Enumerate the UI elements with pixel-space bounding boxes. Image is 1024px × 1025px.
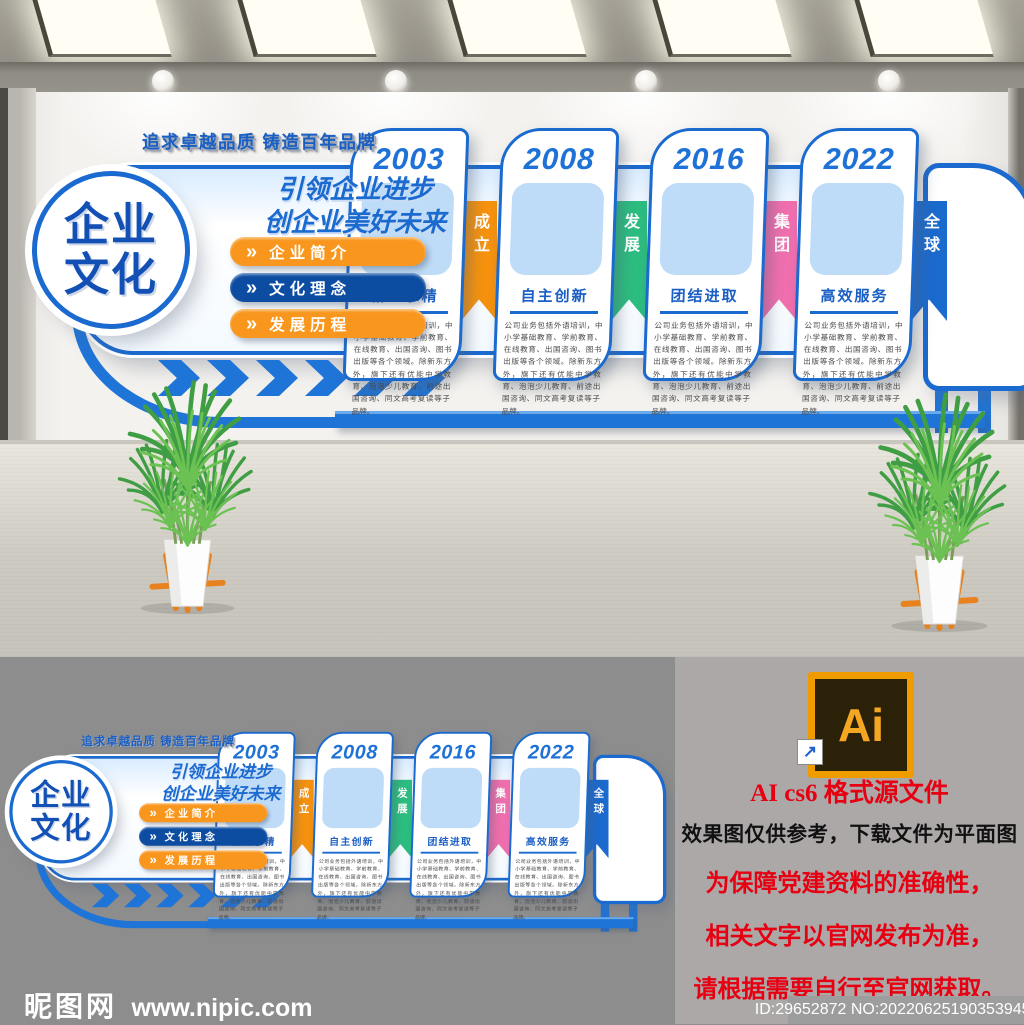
- timeline-panel-2016: 2016 团结进取 公司业务包括外语培训，中小学基础教育、学前教育、在线教育、出…: [643, 128, 770, 381]
- flat-design-preview: 追求卓越品质 铸造百年品牌 企业 文化 引领企业进步 创企业美好未来 » 企业简…: [8, 722, 656, 938]
- panel-photo-placeholder: [420, 768, 482, 828]
- timeline-panel-2022: 2022 高效服务 公司业务包括外语培训，中小学基础教育、学前教育、在线教育、出…: [793, 128, 920, 381]
- menu-pill-label: 企业简介: [165, 806, 219, 820]
- panel-body-text: 公司业务包括外语培训，中小学基础教育、学前教育、在线教育、出国咨询、图书出版等各…: [651, 320, 752, 418]
- ceiling-light-panel: [853, 0, 993, 57]
- brand-line-1: 企业: [30, 779, 92, 812]
- watermark: 昵图网 www.nipic.com: [24, 985, 313, 1025]
- notice-title: AI cs6 格式源文件: [675, 773, 1024, 809]
- panel-title: 高效服务: [798, 285, 911, 306]
- spotlight: [152, 70, 174, 92]
- timeline-panel-2016: 2016 团结进取 公司业务包括外语培训，中小学基础教育、学前教育、在线教育、出…: [409, 732, 492, 898]
- panel-body-text: 公司业务包括外语培训，中小学基础教育、学前教育、在线教育、出国咨询、图书出版等各…: [317, 857, 383, 921]
- spotlight: [385, 70, 407, 92]
- menu-pill-label: 发展历程: [165, 853, 219, 867]
- ai-icon-label: Ai: [838, 698, 884, 752]
- panel-year: 2022: [803, 143, 916, 177]
- menu-pill-culture-concept: » 文化理念: [230, 273, 426, 302]
- double-chevron-icon: »: [246, 242, 257, 262]
- ceiling: [0, 0, 1024, 62]
- showroom-scene: 追求卓越品质 铸造百年品牌 企业 文化 引领企业进步 创企业美好未来 » 企业简…: [0, 0, 1024, 657]
- double-chevron-icon: »: [149, 853, 156, 866]
- notice-red-line-1: 为保障党建资料的准确性，: [675, 863, 1024, 898]
- slogan-line-1: 引领企业进步: [222, 173, 488, 206]
- slogan-line-2: 创企业美好未来: [134, 783, 308, 804]
- ceiling-soffit: [0, 62, 1024, 92]
- double-chevron-icon: »: [149, 830, 156, 843]
- panel-divider: [322, 852, 380, 854]
- potted-plant: [854, 376, 1024, 636]
- double-chevron-icon: »: [149, 806, 156, 819]
- panel-photo-placeholder: [509, 183, 604, 275]
- asset-id-badge: ID:29652872 NO:20220625190353945123: [788, 996, 1024, 1024]
- panel-photo-placeholder: [809, 183, 904, 275]
- timeline-panel-2022: 2022 高效服务 公司业务包括外语培训，中小学基础教育、学前教育、在线教育、出…: [507, 732, 590, 898]
- menu-pill-company-profile: » 企业简介: [230, 237, 426, 266]
- spotlight: [635, 70, 657, 92]
- culture-wall: 追求卓越品质 铸造百年品牌 企业 文化 引领企业进步 创企业美好未来 » 企业简…: [8, 722, 656, 938]
- panel-title: 高效服务: [511, 835, 585, 849]
- panel-body-text: 公司业务包括外语培训，中小学基础教育、学前教育、在线教育、出国咨询、图书出版等各…: [415, 857, 481, 921]
- menu-pill-label: 发展历程: [269, 313, 351, 335]
- timeline-panel-2008: 2008 自主创新 公司业务包括外语培训，中小学基础教育、学前教育、在线教育、出…: [493, 128, 620, 381]
- menu-pill-development-history: » 发展历程: [139, 850, 267, 869]
- ceiling-light-panel: [31, 0, 171, 57]
- info-strip: 追求卓越品质 铸造百年品牌 企业 文化 引领企业进步 创企业美好未来 » 企业简…: [0, 657, 1024, 1024]
- menu-pill-label: 文化理念: [165, 829, 219, 843]
- panel-photo-placeholder: [518, 768, 580, 828]
- menu-pill-label: 文化理念: [269, 277, 351, 299]
- brand-line-1: 企业: [64, 200, 158, 250]
- panel-title: 自主创新: [498, 285, 611, 306]
- menu-pill-culture-concept: » 文化理念: [139, 827, 267, 846]
- menu-pill-development-history: » 发展历程: [230, 309, 426, 338]
- watermark-site-url: www.nipic.com: [131, 994, 312, 1022]
- slogan: 引领企业进步 创企业美好未来: [134, 761, 308, 804]
- panel-body-text: 公司业务包括外语培训，中小学基础教育、学前教育、在线教育、出国咨询、图书出版等各…: [501, 320, 602, 418]
- ceiling-light-panel: [446, 0, 586, 57]
- brand-line-2: 文化: [30, 812, 92, 845]
- notice-disclaimer: 效果图仅供参考，下载文件为平面图: [663, 817, 1024, 847]
- double-chevron-icon: »: [246, 278, 257, 298]
- panel-title: 团结进取: [648, 285, 761, 306]
- panel-divider: [510, 311, 598, 314]
- double-chevron-icon: »: [246, 314, 257, 334]
- flat-preview-area: 追求卓越品质 铸造百年品牌 企业 文化 引领企业进步 创企业美好未来 » 企业简…: [0, 657, 675, 1024]
- brand-circle: 企业 文化: [9, 760, 112, 863]
- top-tagline: 追求卓越品质 铸造百年品牌: [142, 129, 742, 154]
- adobe-illustrator-icon: Ai: [808, 672, 914, 778]
- brand-line-2: 文化: [64, 250, 158, 300]
- ceiling-light-panel: [236, 0, 376, 57]
- download-notes-area: Ai ↗ AI cs6 格式源文件 效果图仅供参考，下载文件为平面图 为保障党建…: [675, 657, 1024, 1024]
- panel-body-text: 公司业务包括外语培训，中小学基础教育、学前教育、在线教育、出国咨询、图书出版等各…: [513, 857, 579, 921]
- slogan-line-2: 创企业美好未来: [222, 206, 488, 239]
- panel-photo-placeholder: [659, 183, 754, 275]
- panel-divider: [660, 311, 748, 314]
- top-tagline: 追求卓越品质 铸造百年品牌: [81, 732, 474, 748]
- slogan-line-1: 引领企业进步: [134, 761, 308, 782]
- panel-divider: [810, 311, 898, 314]
- potted-plant: [104, 364, 272, 618]
- panel-photo-placeholder: [322, 768, 384, 828]
- panel-divider: [421, 852, 479, 854]
- shortcut-arrow-glyph: ↗: [803, 742, 817, 762]
- brand-circle: 企业 文化: [32, 171, 190, 329]
- timeline-panel-2008: 2008 自主创新 公司业务包括外语培训，中小学基础教育、学前教育、在线教育、出…: [311, 732, 394, 898]
- panel-divider: [519, 852, 577, 854]
- watermark-site-name: 昵图网: [24, 991, 117, 1022]
- menu-pill-label: 企业简介: [269, 241, 351, 263]
- ceiling-light-panel: [651, 0, 791, 57]
- notice-red-line-2: 相关文字以官网发布为准，: [675, 916, 1024, 951]
- panel-title: 自主创新: [315, 835, 389, 849]
- slogan: 引领企业进步 创企业美好未来: [222, 173, 488, 238]
- panel-title: 团结进取: [413, 835, 487, 849]
- menu-pill-company-profile: » 企业简介: [139, 803, 267, 822]
- panel-year: 2022: [514, 742, 588, 764]
- spotlight: [878, 70, 900, 92]
- shortcut-arrow-icon: ↗: [797, 739, 823, 765]
